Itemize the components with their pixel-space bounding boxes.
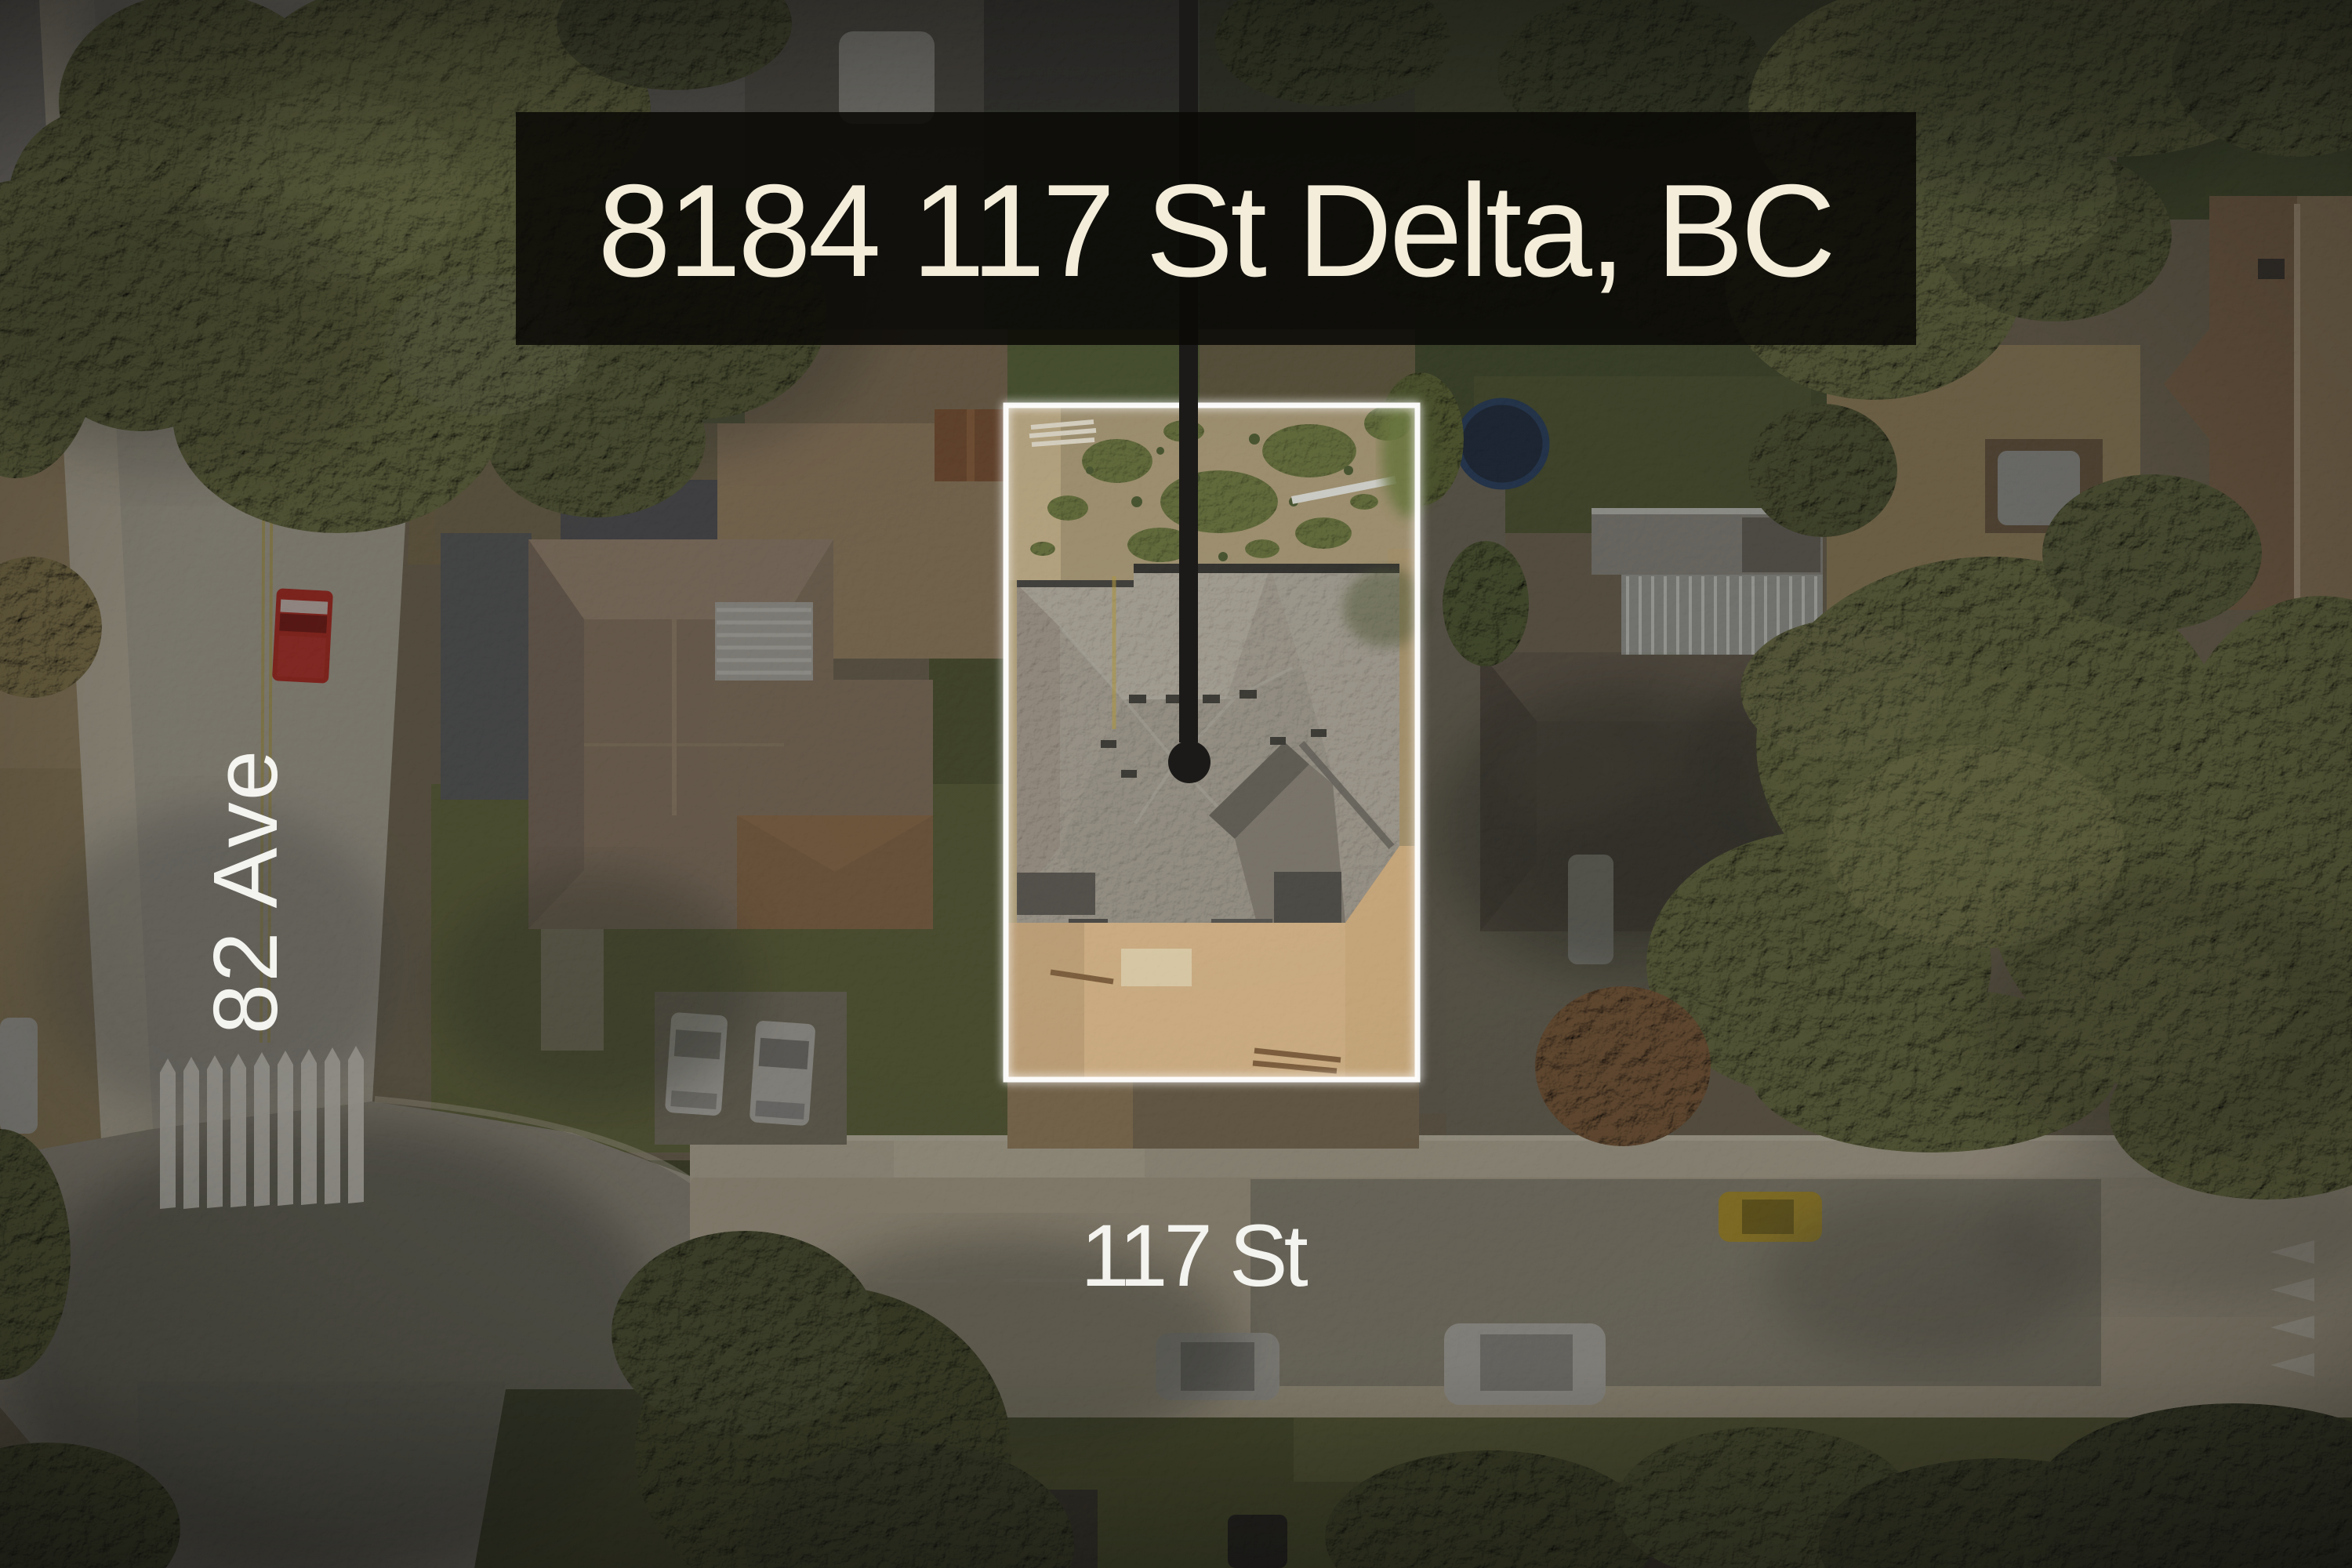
svg-text:82 Ave: 82 Ave bbox=[194, 749, 296, 1035]
svg-text:117 St: 117 St bbox=[1080, 1207, 1308, 1305]
svg-text:8184 117 St Delta, BC: 8184 117 St Delta, BC bbox=[597, 157, 1832, 304]
